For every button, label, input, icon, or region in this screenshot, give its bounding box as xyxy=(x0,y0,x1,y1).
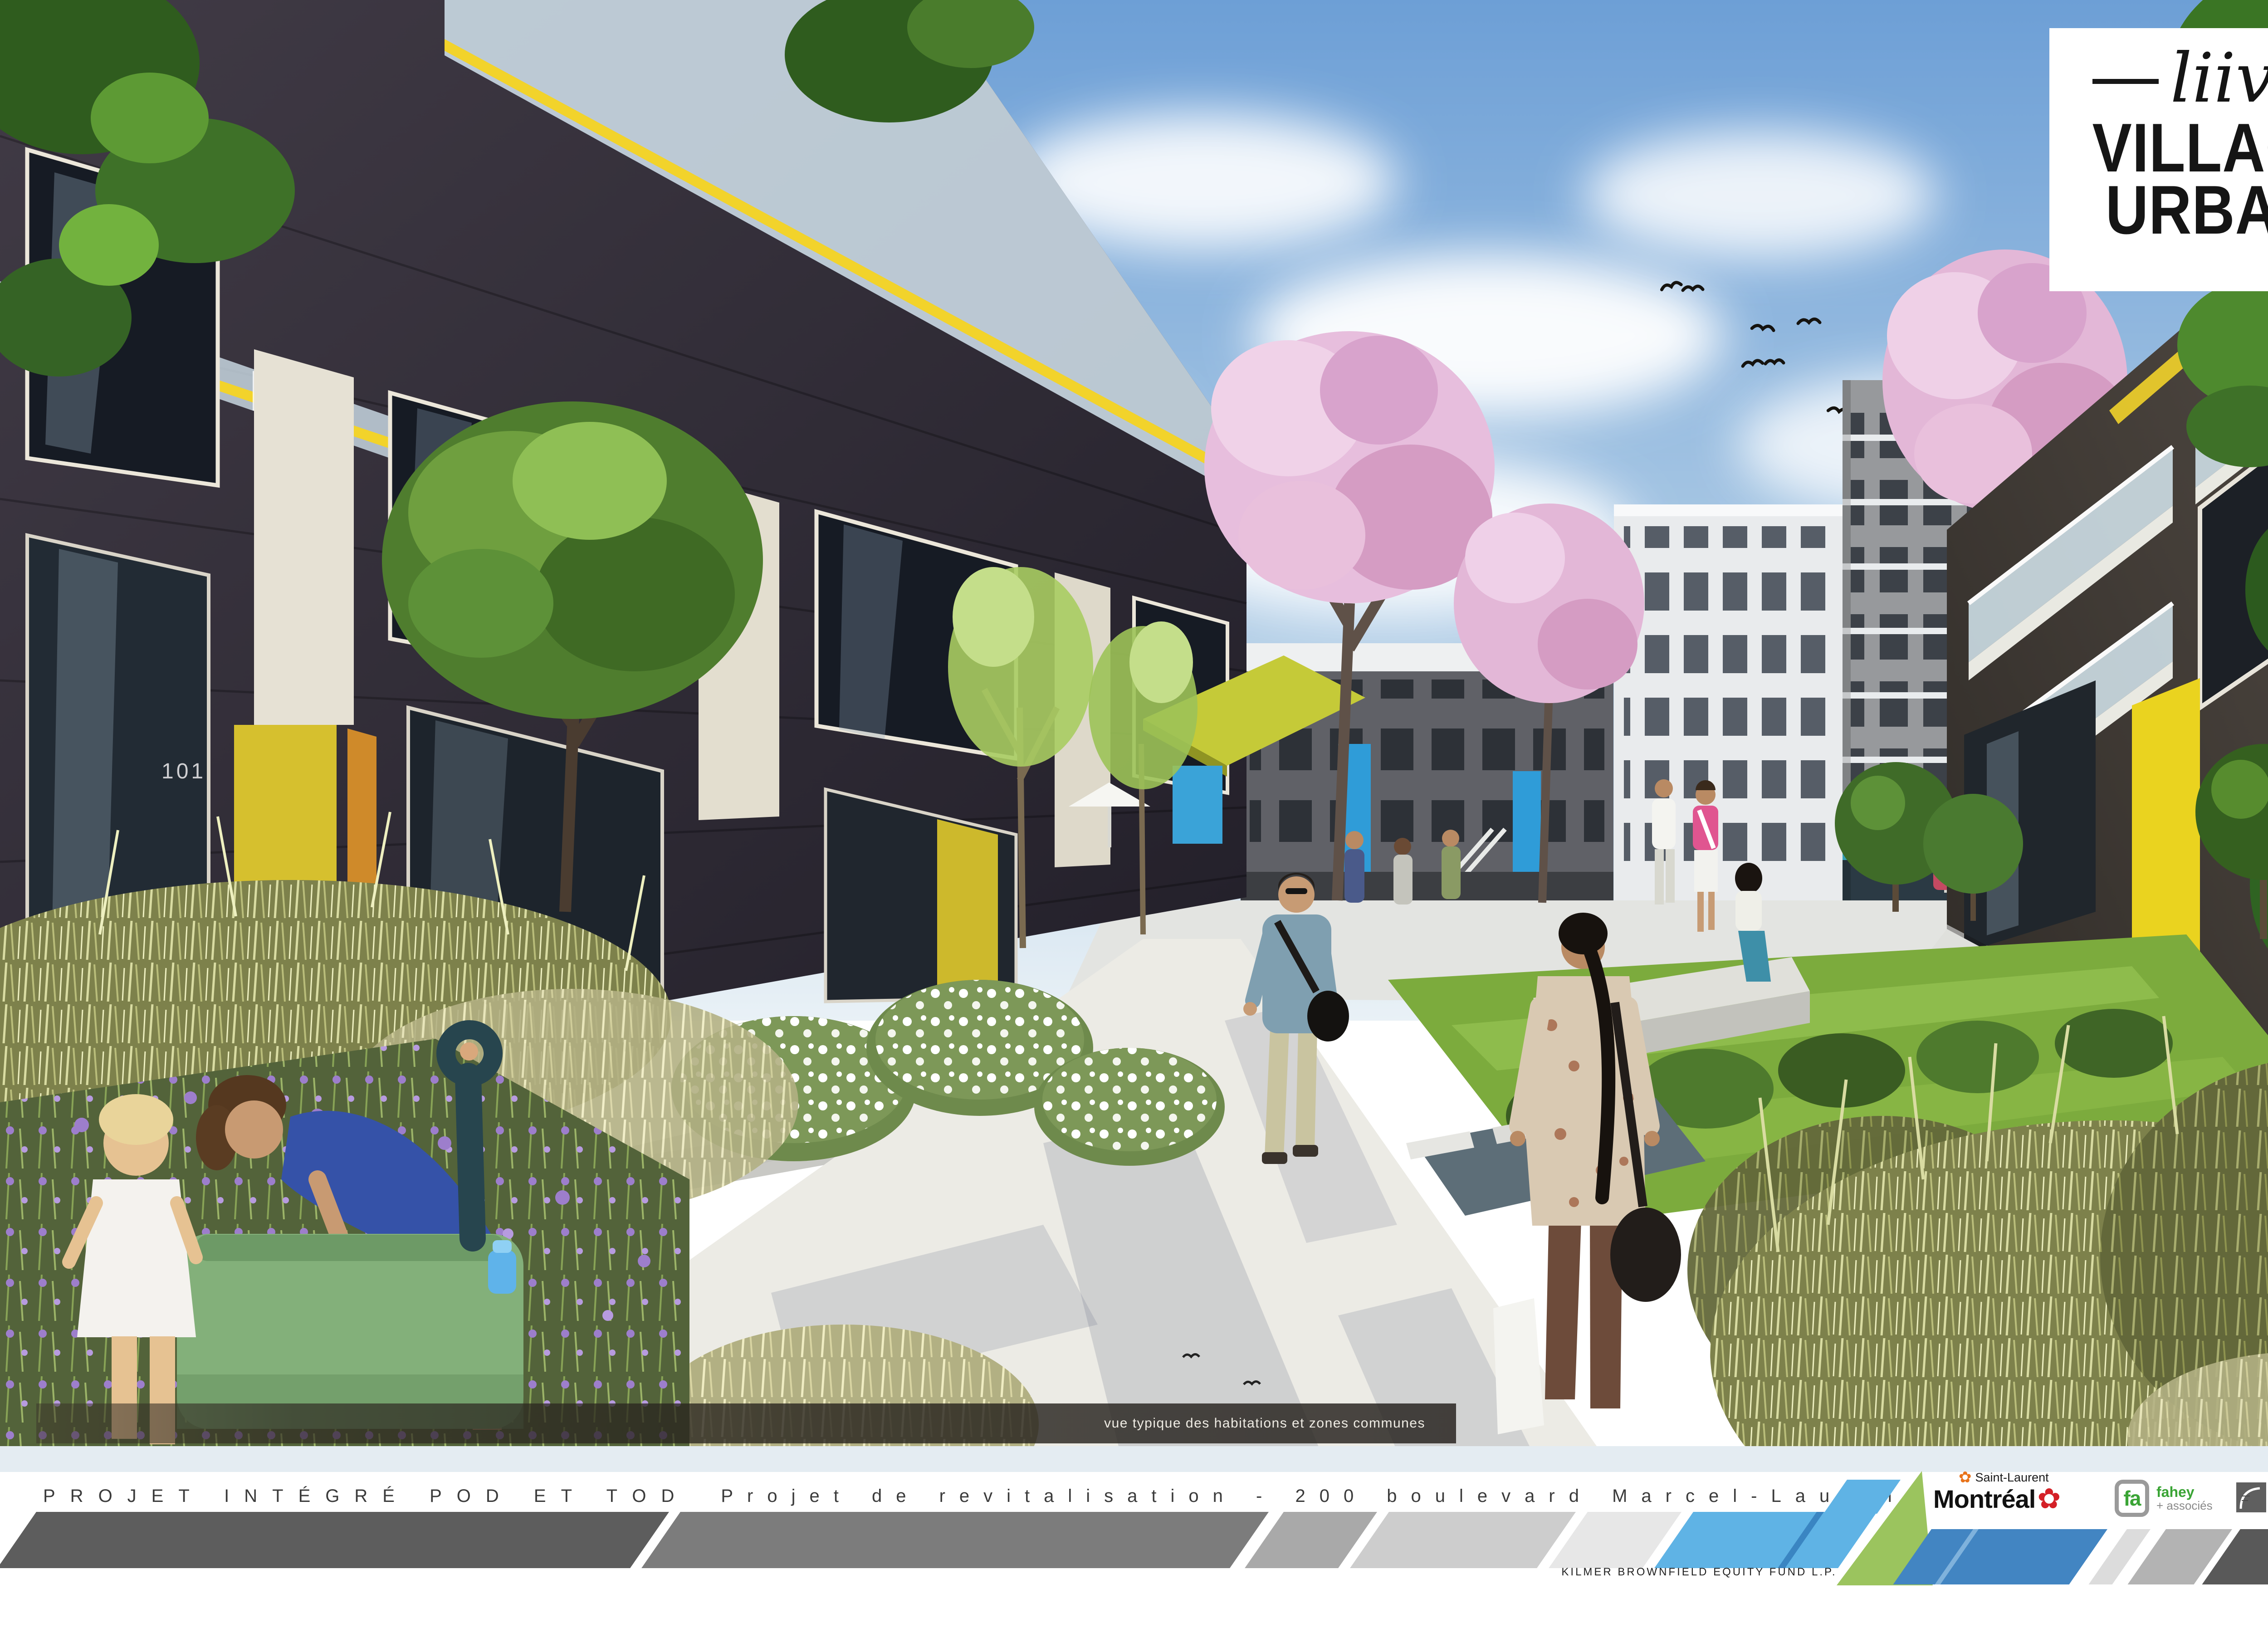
fahey-text: fahey + associés xyxy=(2156,1485,2213,1512)
saint-laurent-flower-icon: ✿ xyxy=(1959,1470,1972,1485)
montreal-row: Montréal ✿ xyxy=(1933,1484,2101,1514)
stripe2-blue-line xyxy=(1935,1529,1979,1584)
stripe-light-blue xyxy=(1654,1512,1877,1568)
sippy-bottle xyxy=(488,1250,516,1294)
fahey-suffix: + associés xyxy=(2156,1500,2213,1512)
logo-line-urbain: URBAIN xyxy=(2106,179,2268,241)
saint-laurent-row: ✿ Saint-Laurent xyxy=(1959,1470,2101,1485)
plaza-walkers xyxy=(1344,830,1461,905)
liiv-village-urbain-logo: liiv VILLAGE URBAIN xyxy=(2049,28,2268,291)
saint-laurent-montreal-logo: ✿ Saint-Laurent Montréal ✿ xyxy=(1933,1470,2101,1514)
stripe2-blue xyxy=(1893,1529,2107,1584)
left-rule xyxy=(2092,79,2159,84)
stripe-medium-gray xyxy=(641,1512,1269,1568)
fahey-mark-letters: fa xyxy=(2124,1486,2141,1511)
presentation-board: 102 xyxy=(0,0,2268,1633)
caption-bar: vue typique des habitations et zones com… xyxy=(36,1403,1456,1443)
montreal-name: Montréal xyxy=(1933,1484,2035,1514)
unit-number-101: 101 xyxy=(161,759,206,783)
montreal-rosette-icon: ✿ xyxy=(2037,1485,2061,1513)
liiv-script-row: liiv xyxy=(2092,40,2268,117)
liiv-script: liiv xyxy=(2170,44,2268,112)
project-title: PROJET INTÉGRÉ POD ET TOD xyxy=(43,1486,689,1506)
saint-laurent-name: Saint-Laurent xyxy=(1975,1471,2049,1485)
logo-line-village: VILLAGE xyxy=(2092,117,2268,179)
fund-credit: KILMER BROWNFIELD EQUITY FUND L.P. xyxy=(1560,1566,1838,1579)
campanella-logo: CAMPANELLA & ASSOCIÉS architecture + des… xyxy=(2236,1482,2268,1512)
stripe-light-blue-line xyxy=(1778,1512,1824,1568)
project-title-line: PROJET INTÉGRÉ POD ET TOD Projet de revi… xyxy=(43,1486,1906,1506)
fahey-name: fahey xyxy=(2156,1485,2213,1500)
rendering-bottom-strip xyxy=(0,1446,2268,1472)
architectural-rendering: 102 xyxy=(0,0,2268,1472)
background-building-white xyxy=(1614,504,1846,903)
stripe-dark-gray xyxy=(0,1512,669,1568)
stripe-silver xyxy=(1350,1512,1576,1568)
fahey-associes-logo: fa fahey + associés xyxy=(2115,1480,2213,1517)
fahey-mark-icon: fa xyxy=(2115,1480,2149,1517)
caption-text: vue typique des habitations et zones com… xyxy=(1104,1416,1425,1431)
campanella-mark-icon xyxy=(2236,1482,2266,1512)
project-subtitle: Projet de revitalisation - 200 boulevard… xyxy=(721,1486,1906,1506)
